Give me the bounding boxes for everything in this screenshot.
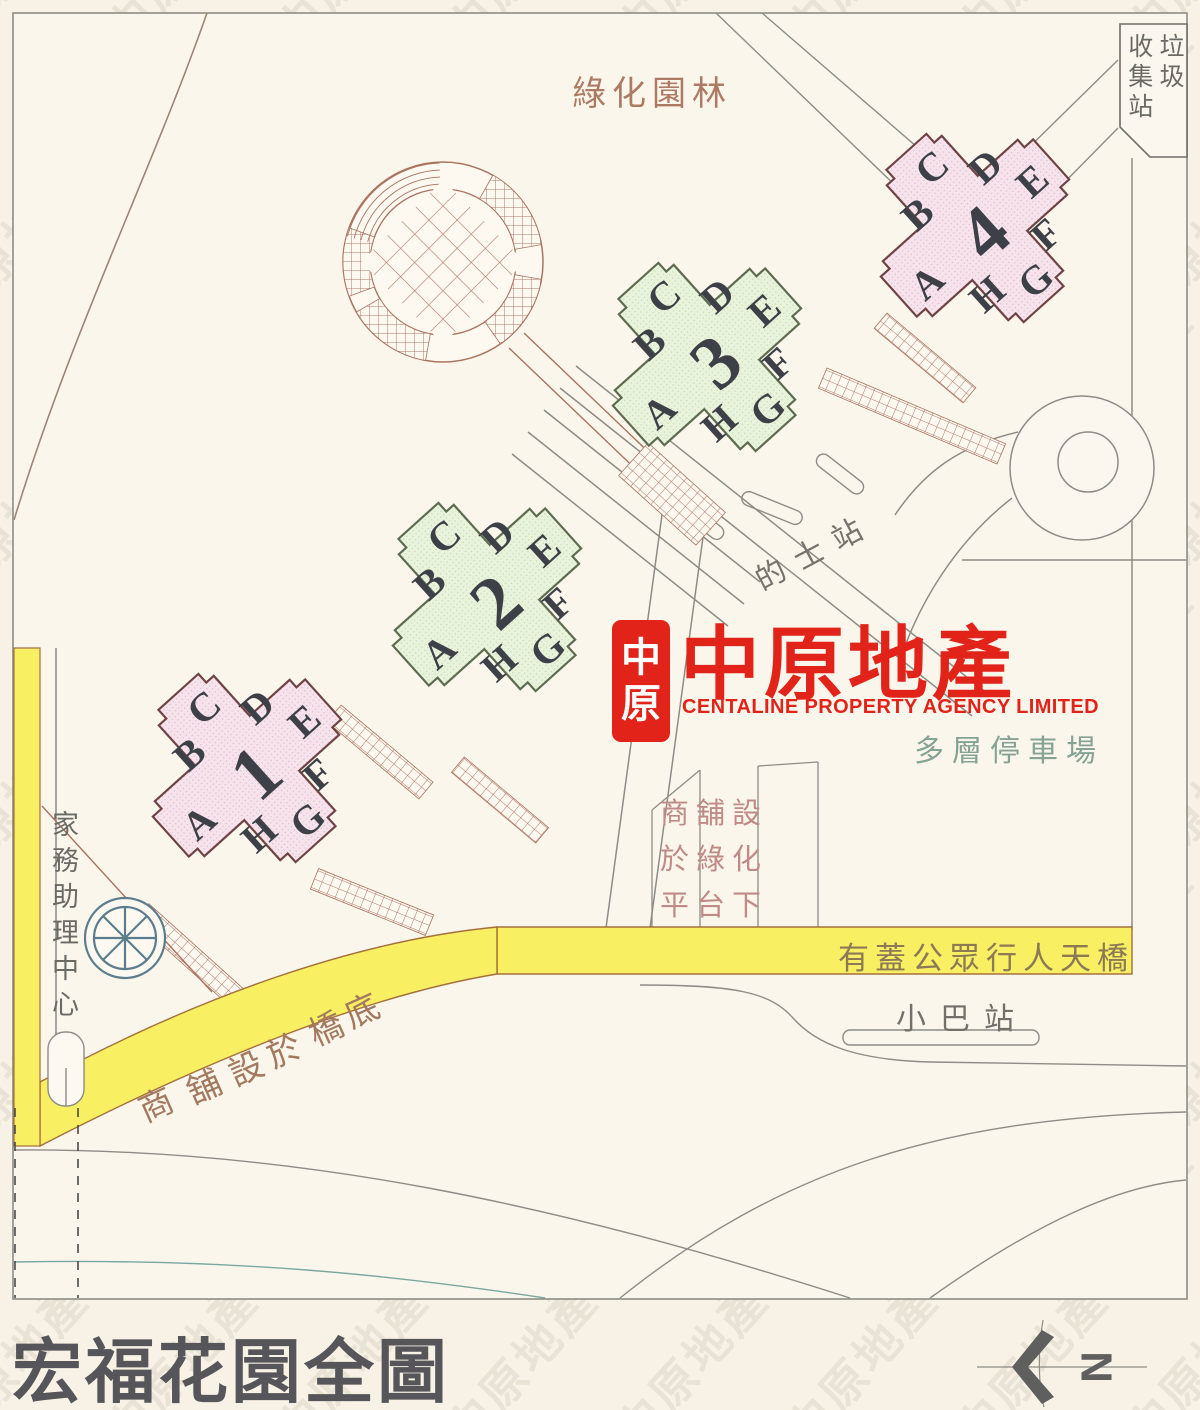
label-landscaped-garden: 綠化園林	[572, 66, 732, 115]
label-covered-footbridge: 有蓋公眾行人天橋	[838, 933, 1134, 978]
label-home-helper-centre: 家務助理中心	[44, 810, 83, 1026]
compass: N	[977, 1320, 1147, 1407]
centaline-name-english: CENTALINE PROPERTY AGENCY LIMITED	[682, 696, 1099, 719]
page-title: 宏福花園全圖	[12, 1316, 450, 1410]
refuse-label-col-2: 收集站	[1123, 33, 1154, 159]
compass-north-letter: N	[1072, 1351, 1121, 1383]
label-refuse-collection-station: 垃圾 收集站	[1127, 33, 1185, 159]
shops-podium-row-1: 商舖設	[660, 792, 768, 838]
label-multistorey-carpark: 多層停車場	[914, 726, 1104, 770]
seal-char-top: 中	[621, 636, 661, 680]
seal-char-bottom: 原	[621, 682, 661, 726]
label-shops-on-podium: 商舖設 於綠化 平台下	[660, 792, 768, 929]
stair-feature	[48, 1032, 84, 1106]
estate-site-plan: 中原地產中原地產中原地產中原地產中原地產中原地產中原地產中原地產中原地產中原地產…	[0, 0, 1200, 1410]
centaline-seal-logo: 中 原	[612, 620, 670, 742]
label-minibus-stop: 小巴站	[896, 994, 1028, 1038]
shops-podium-row-2: 於綠化	[660, 838, 768, 884]
shops-podium-row-3: 平台下	[660, 884, 768, 930]
wheel-feature	[85, 898, 165, 978]
refuse-label-col-1: 垃圾	[1154, 33, 1185, 159]
